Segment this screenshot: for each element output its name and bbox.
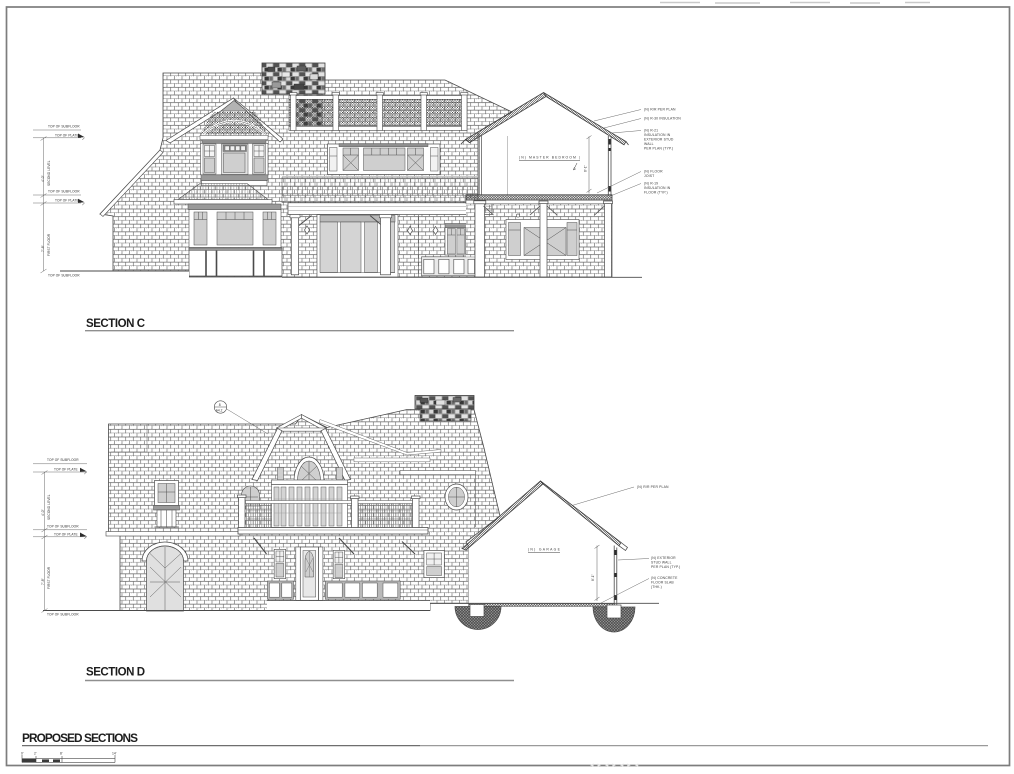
svg-text:JOIST: JOIST [644, 174, 654, 178]
svg-text:(N) GARAGE: (N) GARAGE [528, 548, 561, 552]
svg-text:SECOND LEVEL: SECOND LEVEL [47, 160, 51, 186]
svg-text:FLOOR (TYP.): FLOOR (TYP.) [644, 191, 668, 195]
svg-text:(N) R/R PER PLAN: (N) R/R PER PLAN [644, 108, 676, 112]
svg-text:SECOND LEVEL: SECOND LEVEL [47, 494, 51, 520]
svg-text:0': 0' [21, 752, 24, 756]
svg-text:PER PLAN (TYP.): PER PLAN (TYP.) [644, 147, 673, 151]
svg-text:SECTION D: SECTION D [86, 667, 145, 679]
svg-text:TOP OF PLATE: TOP OF PLATE [54, 533, 78, 537]
svg-text:8: 8 [219, 403, 221, 407]
svg-text:TOP OF PLATE: TOP OF PLATE [55, 199, 79, 203]
svg-text:(N) R/R PER PLAN: (N) R/R PER PLAN [637, 485, 669, 489]
svg-text:A4.2: A4.2 [216, 409, 223, 413]
svg-text:(N) R-30 INSULATION: (N) R-30 INSULATION [644, 117, 681, 121]
svg-text:(THK.): (THK.) [651, 585, 662, 589]
svg-text:TOP OF PLATE: TOP OF PLATE [55, 134, 79, 138]
svg-text:8'-1": 8'-1" [584, 165, 588, 172]
svg-text:14': 14' [112, 752, 117, 756]
svg-text:TOP OF PLATE: TOP OF PLATE [54, 468, 78, 472]
svg-text:STUD WALL: STUD WALL [651, 561, 672, 565]
svg-text:(N) R-21: (N) R-21 [644, 129, 658, 133]
svg-text:INSULATION IN: INSULATION IN [644, 133, 671, 137]
svg-text:FLOOR SLAB: FLOOR SLAB [651, 581, 674, 585]
svg-text:TOP OF SUBFLOOR: TOP OF SUBFLOOR [47, 613, 79, 617]
svg-text:PER PLAN (TYP.): PER PLAN (TYP.) [651, 565, 680, 569]
svg-text:(N) EXTERIOR: (N) EXTERIOR [651, 556, 676, 560]
svg-text:TOP OF SUBFLOOR: TOP OF SUBFLOOR [48, 273, 80, 277]
svg-text:(N) R-19: (N) R-19 [644, 182, 658, 186]
svg-text:TOP OF SUBFLOOR: TOP OF SUBFLOOR [48, 190, 80, 194]
svg-text:(N) MASTER BEDROOM |: (N) MASTER BEDROOM | [519, 156, 580, 160]
svg-text:8': 8' [60, 752, 63, 756]
svg-text:SECTION C: SECTION C [86, 318, 145, 330]
svg-text:TOP OF SUBFLOOR: TOP OF SUBFLOOR [48, 125, 80, 129]
svg-text:EXTERIOR STUD: EXTERIOR STUD [644, 138, 674, 142]
svg-text:8'-1": 8'-1" [591, 574, 595, 581]
svg-text:WALL: WALL [644, 142, 654, 146]
svg-text:4'-0": 4'-0" [41, 175, 45, 182]
svg-text:2': 2' [34, 752, 37, 756]
svg-text:TOP OF SUBFLOOR: TOP OF SUBFLOOR [47, 525, 79, 529]
svg-text:FIRST FLOOR: FIRST FLOOR [47, 566, 51, 589]
svg-text:PROPOSED SECTIONS: PROPOSED SECTIONS [22, 731, 138, 745]
svg-text:◂ ▸ ◂ ▸ ◂ ▸ ◂: ◂ ▸ ◂ ▸ ◂ ▸ ◂ [590, 762, 639, 769]
svg-text:(N) FLOOR: (N) FLOOR [644, 170, 663, 174]
svg-text:INSULATION IN: INSULATION IN [644, 186, 671, 190]
svg-text:FIRST FLOOR: FIRST FLOOR [47, 233, 51, 256]
svg-text:7'-8": 7'-8" [41, 245, 45, 252]
svg-text:(N) CONCRETE: (N) CONCRETE [651, 576, 678, 580]
svg-text:TOP OF SUBFLOOR: TOP OF SUBFLOOR [47, 458, 79, 462]
